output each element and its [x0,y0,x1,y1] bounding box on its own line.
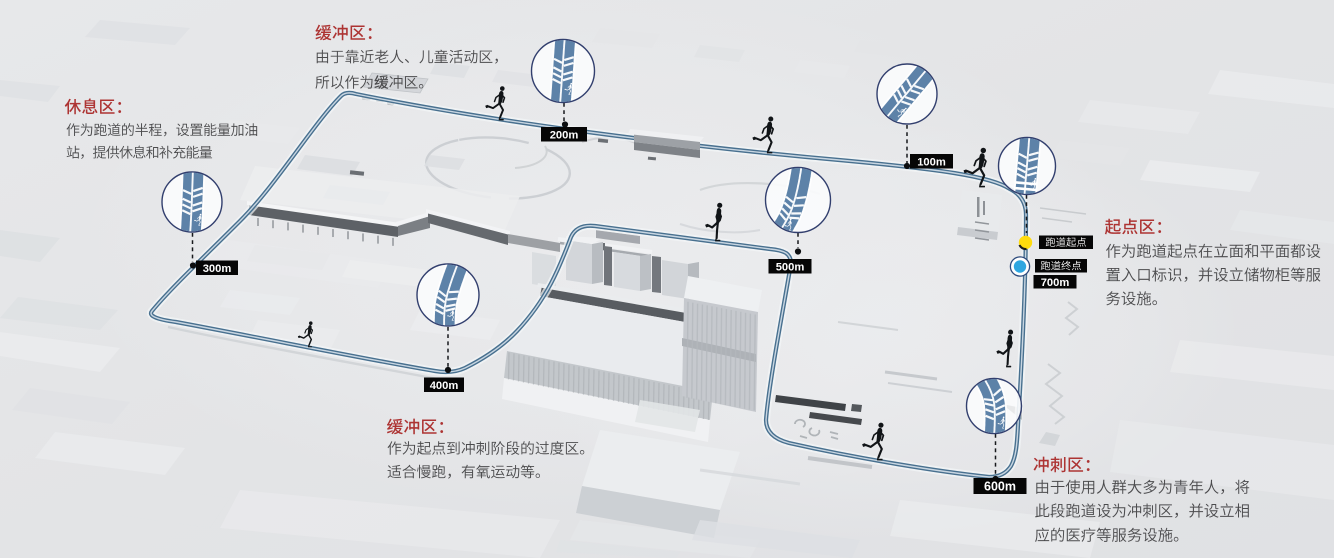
svg-text:200m: 200m [550,129,579,141]
svg-text:300m: 300m [203,263,232,275]
svg-text:700m: 700m [1041,277,1070,289]
svg-text:100m: 100m [917,156,946,168]
svg-text:400m: 400m [430,380,459,392]
svg-text:500m: 500m [776,261,805,273]
svg-text:600m: 600m [984,480,1016,494]
